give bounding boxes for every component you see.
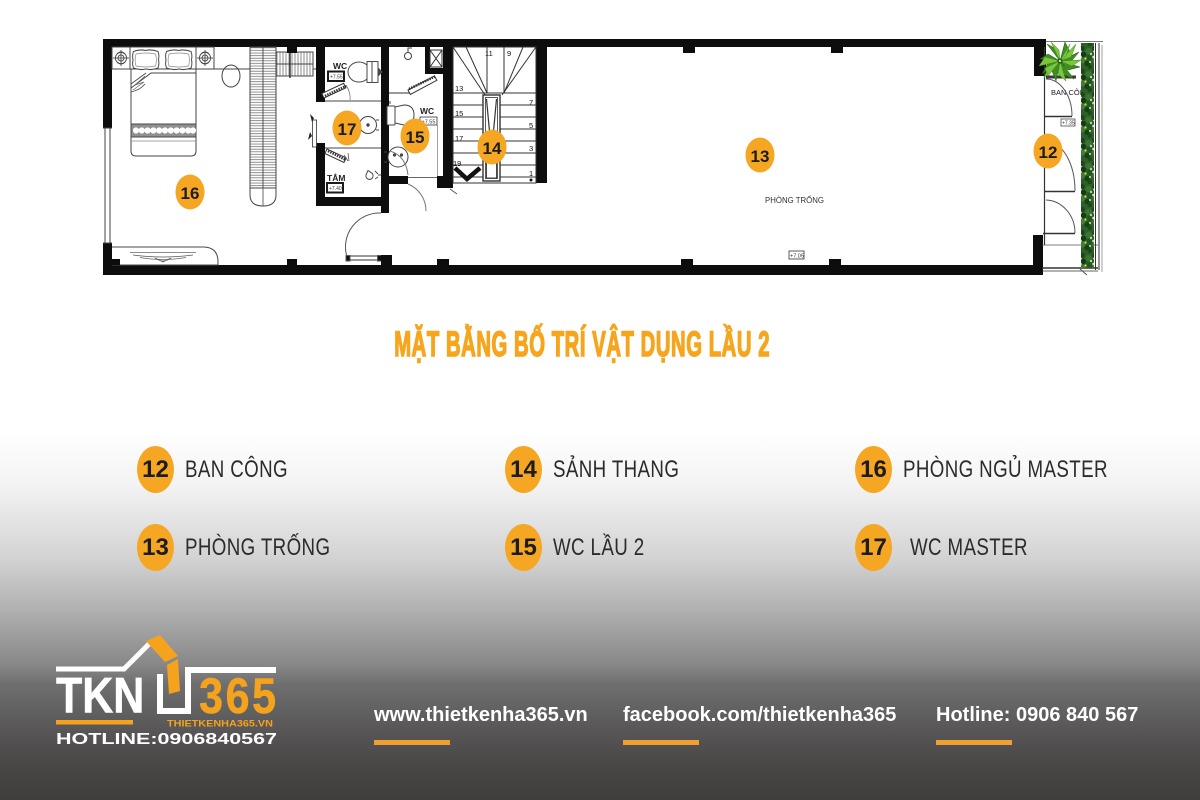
svg-text:WC: WC (420, 106, 434, 116)
svg-text:5: 5 (529, 121, 533, 130)
svg-text:17: 17 (455, 134, 463, 143)
svg-text:HOTLINE:0906840567: HOTLINE:0906840567 (56, 731, 277, 748)
svg-text:+7.40: +7.40 (329, 186, 342, 192)
svg-text:16: 16 (181, 184, 200, 203)
svg-text:11: 11 (485, 49, 493, 58)
svg-text:17: 17 (338, 120, 357, 139)
svg-text:TKN: TKN (56, 667, 144, 723)
svg-text:12: 12 (1039, 143, 1058, 162)
svg-text:+7.55: +7.55 (330, 75, 343, 81)
svg-text:TẮM: TẮM (327, 173, 345, 183)
svg-text:19: 19 (453, 159, 461, 168)
svg-text:13: 13 (751, 147, 770, 166)
svg-text:13: 13 (455, 84, 463, 93)
svg-text:365: 365 (199, 668, 278, 724)
svg-text:1: 1 (529, 169, 533, 178)
svg-text:9: 9 (507, 49, 511, 58)
svg-text:15: 15 (406, 128, 425, 147)
svg-text:+7.05: +7.05 (790, 254, 804, 260)
svg-text:PHÒNG TRỐNG: PHÒNG TRỐNG (765, 194, 824, 205)
svg-text:THIETKENHA365.VN: THIETKENHA365.VN (167, 719, 273, 729)
svg-text:3: 3 (529, 144, 533, 153)
svg-text:WC: WC (333, 61, 347, 71)
svg-text:15: 15 (455, 109, 463, 118)
svg-text:14: 14 (483, 139, 502, 158)
svg-text:+7.35: +7.35 (1062, 121, 1075, 127)
svg-text:7: 7 (529, 98, 533, 107)
